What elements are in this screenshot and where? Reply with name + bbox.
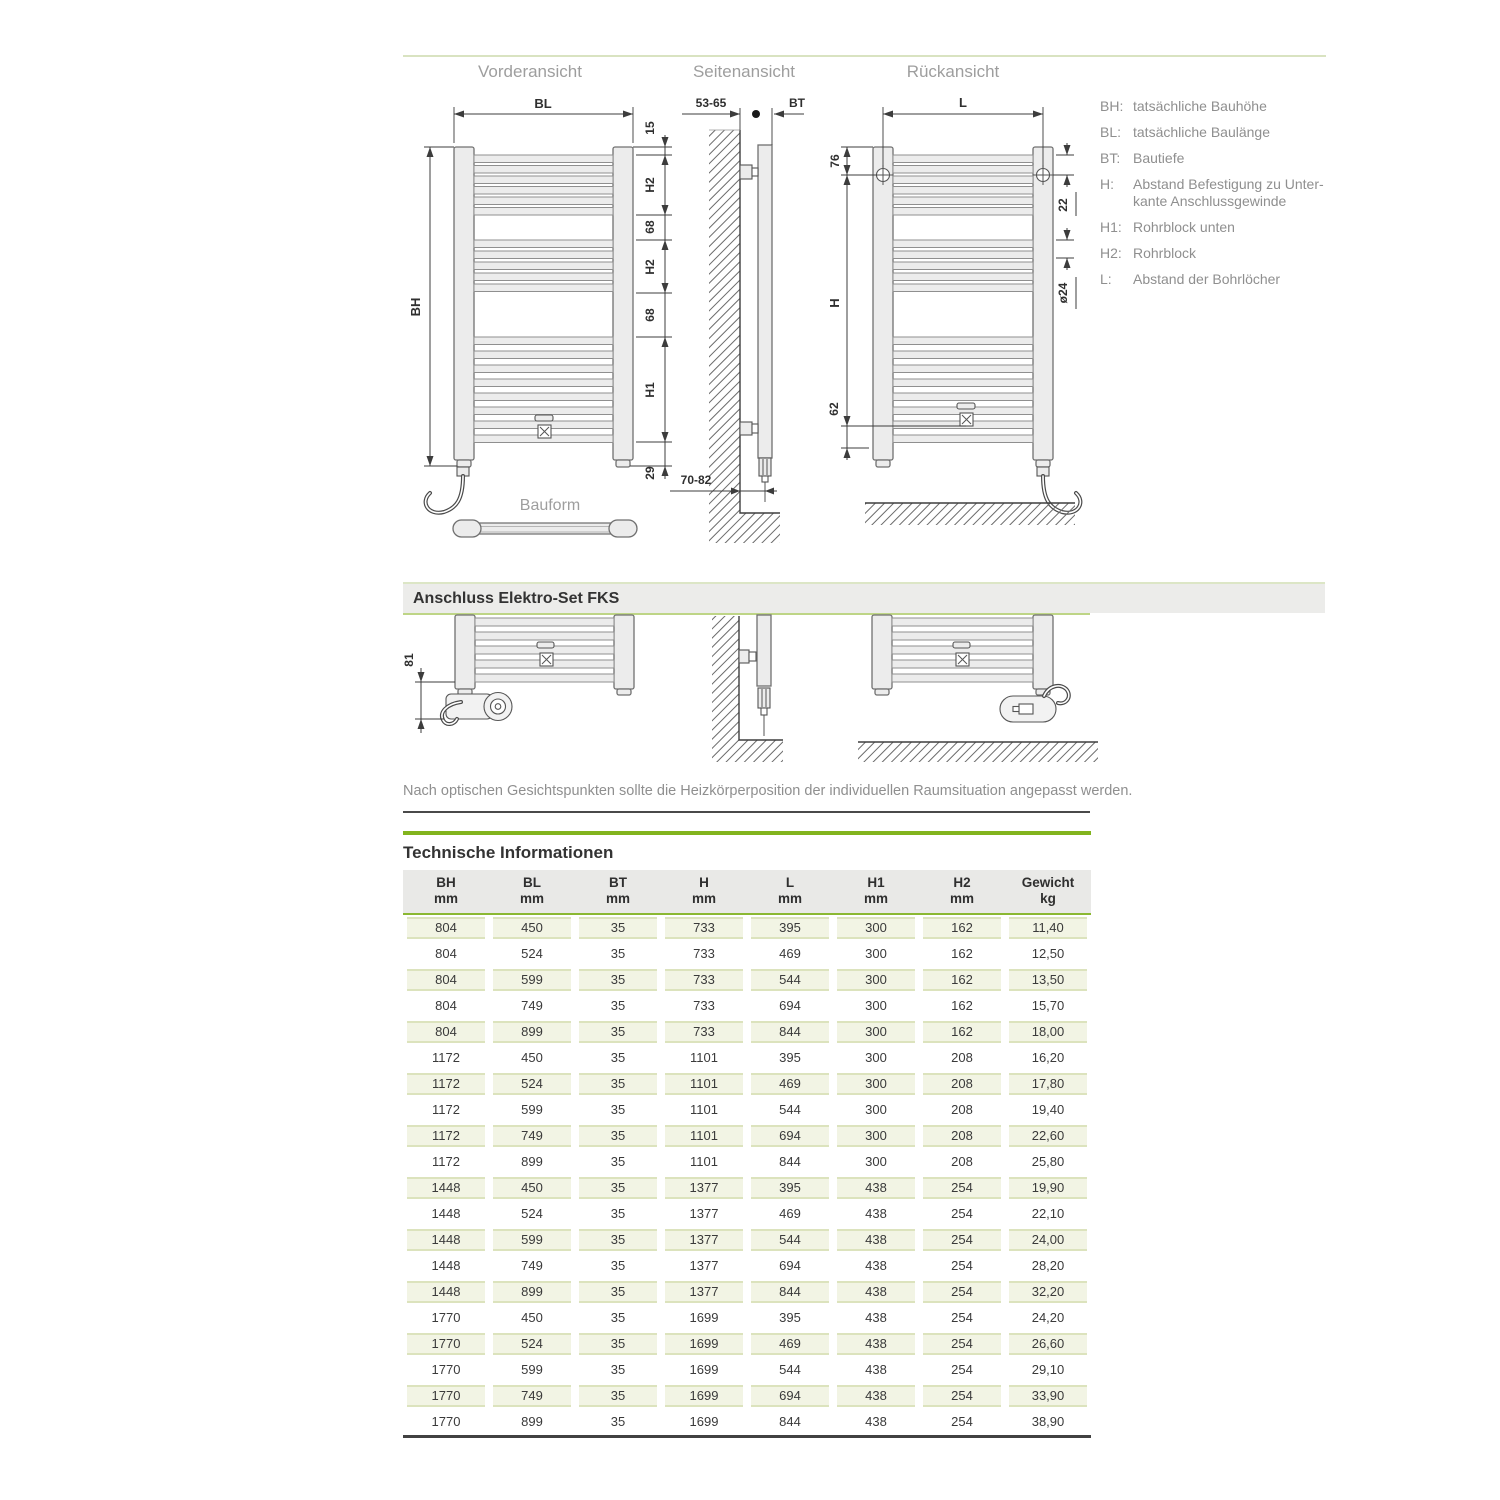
cell-bh: 1172 xyxy=(403,1123,489,1149)
column-label: BH xyxy=(403,875,489,891)
cell-gewicht: 15,70 xyxy=(1005,993,1091,1019)
cell-h1: 438 xyxy=(833,1253,919,1279)
cell-h2: 254 xyxy=(919,1409,1005,1437)
column-header: BH mm xyxy=(403,870,489,914)
cell-h2: 254 xyxy=(919,1201,1005,1227)
cell-h2: 162 xyxy=(919,993,1005,1019)
cell-bh: 1172 xyxy=(403,1071,489,1097)
cell-bl: 524 xyxy=(489,1071,575,1097)
cell-h: 733 xyxy=(661,1019,747,1045)
column-header: Gewicht kg xyxy=(1005,870,1091,914)
cell-l: 544 xyxy=(747,1227,833,1253)
cell-bt: 35 xyxy=(575,1123,661,1149)
cell-gewicht: 24,00 xyxy=(1005,1227,1091,1253)
cell-gewicht: 22,60 xyxy=(1005,1123,1091,1149)
cell-bh: 1448 xyxy=(403,1227,489,1253)
fks-electro-unit xyxy=(1000,686,1069,722)
cell-h: 733 xyxy=(661,993,747,1019)
cell-h1: 300 xyxy=(833,1123,919,1149)
cell-bh: 804 xyxy=(403,914,489,941)
cell-bh: 1448 xyxy=(403,1279,489,1305)
column-label: BL xyxy=(489,875,575,891)
cell-h2: 254 xyxy=(919,1383,1005,1409)
column-unit: mm xyxy=(833,891,919,907)
cell-bl: 524 xyxy=(489,1201,575,1227)
cell-gewicht: 19,40 xyxy=(1005,1097,1091,1123)
cell-l: 844 xyxy=(747,1019,833,1045)
cell-bh: 804 xyxy=(403,1019,489,1045)
table-row: 804 599 35 733 544 300 162 13,50 xyxy=(403,967,1091,993)
cell-h2: 208 xyxy=(919,1071,1005,1097)
table-row: 804 749 35 733 694 300 162 15,70 xyxy=(403,993,1091,1019)
cell-bh: 804 xyxy=(403,941,489,967)
dim-81-label: 81 xyxy=(403,653,416,667)
cell-h1: 300 xyxy=(833,1149,919,1175)
cell-h2: 162 xyxy=(919,914,1005,941)
legend-text-line1: Abstand der Bohrlöcher xyxy=(1133,271,1280,287)
cell-h: 1699 xyxy=(661,1357,747,1383)
cell-h1: 300 xyxy=(833,941,919,967)
legend-text: Rohrblock unten xyxy=(1133,219,1235,236)
cell-bh: 1770 xyxy=(403,1383,489,1409)
wall-bracket-top xyxy=(740,165,758,179)
cell-l: 844 xyxy=(747,1409,833,1437)
legend-key: H1: xyxy=(1100,219,1133,236)
legend-text: Rohrblock xyxy=(1133,245,1196,262)
table-row: 804 450 35 733 395 300 162 11,40 xyxy=(403,914,1091,941)
legend-item: L:Abstand der Bohrlöcher xyxy=(1100,271,1350,288)
cell-l: 395 xyxy=(747,914,833,941)
cell-h: 733 xyxy=(661,967,747,993)
dim-29-label: 29 xyxy=(643,466,657,480)
wall-bracket-bottom xyxy=(740,422,758,435)
cell-h1: 438 xyxy=(833,1279,919,1305)
cell-h1: 438 xyxy=(833,1331,919,1357)
cell-bl: 899 xyxy=(489,1279,575,1305)
rear-view-drawing: L 76 H 62 22 ø24 xyxy=(827,95,1080,525)
cell-gewicht: 28,20 xyxy=(1005,1253,1091,1279)
cell-bt: 35 xyxy=(575,1253,661,1279)
cell-h2: 162 xyxy=(919,941,1005,967)
elektro-section-title: Anschluss Elektro-Set FKS xyxy=(403,584,1325,608)
cell-h: 1699 xyxy=(661,1331,747,1357)
cell-gewicht: 26,60 xyxy=(1005,1331,1091,1357)
cell-gewicht: 32,20 xyxy=(1005,1279,1091,1305)
cell-h1: 300 xyxy=(833,967,919,993)
cell-bl: 450 xyxy=(489,1175,575,1201)
cell-gewicht: 25,80 xyxy=(1005,1149,1091,1175)
table-row: 1770 450 35 1699 395 438 254 24,20 xyxy=(403,1305,1091,1331)
legend-key: BT: xyxy=(1100,150,1133,167)
dim-68-label: 68 xyxy=(643,220,657,234)
technical-data-table: BH mm BL mm BT mm xyxy=(403,870,1091,1438)
legend-text-line1: tatsächliche Baulänge xyxy=(1133,124,1270,140)
cell-bt: 35 xyxy=(575,1071,661,1097)
floor-hatch xyxy=(858,742,1098,762)
cell-h: 1101 xyxy=(661,1097,747,1123)
dim-76-label: 76 xyxy=(828,154,842,168)
cell-h: 1377 xyxy=(661,1227,747,1253)
side-view-title: Seitenansicht xyxy=(693,62,795,81)
legend-item: H:Abstand Befestigung zu Unter-kante Ans… xyxy=(1100,176,1350,210)
table-header-row: BH mm BL mm BT mm xyxy=(403,870,1091,914)
dim-bt-label: BT xyxy=(789,96,806,110)
rear-rungs xyxy=(893,155,1033,443)
cell-bl: 899 xyxy=(489,1149,575,1175)
cell-gewicht: 29,10 xyxy=(1005,1357,1091,1383)
cell-bl: 599 xyxy=(489,967,575,993)
table-row: 804 524 35 733 469 300 162 12,50 xyxy=(403,941,1091,967)
cell-bt: 35 xyxy=(575,1097,661,1123)
front-view-drawing: BL BH 15 H2 68 H2 68 H1 29 Bauform xyxy=(408,96,672,537)
legend-text: Bautiefe xyxy=(1133,150,1184,167)
column-label: H1 xyxy=(833,875,919,891)
cell-bl: 599 xyxy=(489,1097,575,1123)
cell-bh: 1172 xyxy=(403,1045,489,1071)
cell-h: 1101 xyxy=(661,1045,747,1071)
vent-clip-icon xyxy=(537,642,554,666)
cell-h1: 300 xyxy=(833,1071,919,1097)
cell-bl: 899 xyxy=(489,1409,575,1437)
cell-bl: 599 xyxy=(489,1227,575,1253)
legend-item: BT:Bautiefe xyxy=(1100,150,1350,167)
column-label: H xyxy=(661,875,747,891)
elektro-section-bar: Anschluss Elektro-Set FKS xyxy=(403,584,1325,613)
legend-item: H2:Rohrblock xyxy=(1100,245,1350,262)
datasheet-page: Vorderansicht Seitenansicht Rückansicht xyxy=(0,0,1500,1500)
cell-bt: 35 xyxy=(575,941,661,967)
cell-h: 733 xyxy=(661,914,747,941)
cell-bh: 1172 xyxy=(403,1097,489,1123)
column-unit: mm xyxy=(747,891,833,907)
heating-element xyxy=(758,688,770,736)
dim-l-label: L xyxy=(959,95,967,110)
cell-bt: 35 xyxy=(575,1331,661,1357)
dim-h2-label: H2 xyxy=(643,177,657,193)
cell-h1: 438 xyxy=(833,1383,919,1409)
legend-text: tatsächliche Baulänge xyxy=(1133,124,1270,141)
cell-bh: 804 xyxy=(403,967,489,993)
cell-h: 1377 xyxy=(661,1253,747,1279)
dim-h1-label: H1 xyxy=(643,382,657,398)
section-accent-bar xyxy=(403,831,1091,835)
dim-dia24-label: ø24 xyxy=(1056,282,1070,303)
cell-bl: 749 xyxy=(489,1383,575,1409)
cell-h2: 254 xyxy=(919,1227,1005,1253)
cell-l: 694 xyxy=(747,1383,833,1409)
front-view-title: Vorderansicht xyxy=(478,62,582,81)
front-rungs xyxy=(474,155,613,443)
cell-h2: 208 xyxy=(919,1045,1005,1071)
legend-text-line1: tatsächliche Bauhöhe xyxy=(1133,98,1267,114)
cell-l: 395 xyxy=(747,1045,833,1071)
cell-h2: 254 xyxy=(919,1279,1005,1305)
column-unit: kg xyxy=(1005,891,1091,907)
position-note: Nach optischen Gesichtspunkten sollte di… xyxy=(403,783,1303,799)
cell-bt: 35 xyxy=(575,1279,661,1305)
cell-bh: 1770 xyxy=(403,1409,489,1437)
technical-informations-section: Technische Informationen BH mm BL mm xyxy=(403,831,1091,1438)
column-header: L mm xyxy=(747,870,833,914)
cell-bl: 524 xyxy=(489,941,575,967)
bauform-cross-section xyxy=(453,520,637,537)
cell-l: 544 xyxy=(747,1097,833,1123)
column-unit: mm xyxy=(661,891,747,907)
cell-h: 1377 xyxy=(661,1279,747,1305)
column-header: BT mm xyxy=(575,870,661,914)
wall-bracket xyxy=(739,650,756,663)
cell-bt: 35 xyxy=(575,1019,661,1045)
cell-h1: 438 xyxy=(833,1175,919,1201)
vent-clip-icon xyxy=(535,415,553,438)
legend-item: H1:Rohrblock unten xyxy=(1100,219,1350,236)
cell-h: 1377 xyxy=(661,1201,747,1227)
column-header: H1 mm xyxy=(833,870,919,914)
cell-bt: 35 xyxy=(575,914,661,941)
column-label: L xyxy=(747,875,833,891)
cell-bt: 35 xyxy=(575,1201,661,1227)
cell-bt: 35 xyxy=(575,993,661,1019)
table-row: 1770 749 35 1699 694 438 254 33,90 xyxy=(403,1383,1091,1409)
vent-clip-icon xyxy=(957,403,975,426)
legend-key: BH: xyxy=(1100,98,1133,115)
table-row: 804 899 35 733 844 300 162 18,00 xyxy=(403,1019,1091,1045)
dim-bl-label: BL xyxy=(534,96,551,111)
cell-bl: 749 xyxy=(489,1253,575,1279)
cell-bl: 899 xyxy=(489,1019,575,1045)
cell-h1: 300 xyxy=(833,1019,919,1045)
table-row: 1448 599 35 1377 544 438 254 24,00 xyxy=(403,1227,1091,1253)
cell-h: 1101 xyxy=(661,1071,747,1097)
cell-bl: 450 xyxy=(489,1045,575,1071)
column-header: H mm xyxy=(661,870,747,914)
dim-h2-label: H2 xyxy=(643,259,657,275)
legend-key: H: xyxy=(1100,176,1133,193)
reference-dot xyxy=(752,110,760,118)
table-row: 1172 749 35 1101 694 300 208 22,60 xyxy=(403,1123,1091,1149)
dim-70-82-label: 70-82 xyxy=(681,473,712,487)
fks-electro-unit xyxy=(442,693,512,725)
table-row: 1770 899 35 1699 844 438 254 38,90 xyxy=(403,1409,1091,1437)
vent-clip-icon xyxy=(953,642,970,666)
cell-gewicht: 13,50 xyxy=(1005,967,1091,993)
cell-bt: 35 xyxy=(575,1305,661,1331)
cell-gewicht: 12,50 xyxy=(1005,941,1091,967)
cell-l: 844 xyxy=(747,1279,833,1305)
cell-h: 1699 xyxy=(661,1409,747,1437)
cell-bh: 1448 xyxy=(403,1253,489,1279)
cell-l: 469 xyxy=(747,1071,833,1097)
cell-gewicht: 19,90 xyxy=(1005,1175,1091,1201)
column-unit: mm xyxy=(489,891,575,907)
column-unit: mm xyxy=(575,891,661,907)
cell-bt: 35 xyxy=(575,1227,661,1253)
cell-bl: 599 xyxy=(489,1357,575,1383)
table-row: 1770 524 35 1699 469 438 254 26,60 xyxy=(403,1331,1091,1357)
table-row: 1448 450 35 1377 395 438 254 19,90 xyxy=(403,1175,1091,1201)
cell-l: 395 xyxy=(747,1175,833,1201)
cell-h1: 300 xyxy=(833,914,919,941)
cell-gewicht: 16,20 xyxy=(1005,1045,1091,1071)
cell-l: 544 xyxy=(747,967,833,993)
cell-l: 469 xyxy=(747,1331,833,1357)
cell-h2: 254 xyxy=(919,1175,1005,1201)
legend-text-line2: kante Anschlussgewinde xyxy=(1133,193,1324,210)
cell-h1: 438 xyxy=(833,1409,919,1437)
heating-element xyxy=(759,458,771,502)
cell-h: 1101 xyxy=(661,1149,747,1175)
dim-h-label: H xyxy=(827,298,842,307)
table-row: 1172 450 35 1101 395 300 208 16,20 xyxy=(403,1045,1091,1071)
cell-bh: 1172 xyxy=(403,1149,489,1175)
cell-bt: 35 xyxy=(575,1045,661,1071)
cell-bt: 35 xyxy=(575,1383,661,1409)
dim-62-label: 62 xyxy=(827,402,841,416)
column-label: Gewicht xyxy=(1005,875,1091,891)
legend-text-line1: Bautiefe xyxy=(1133,150,1184,166)
cell-l: 469 xyxy=(747,1201,833,1227)
legend-item: BH:tatsächliche Bauhöhe xyxy=(1100,98,1350,115)
cell-h: 1377 xyxy=(661,1175,747,1201)
fks-front-drawing: 81 xyxy=(403,615,634,733)
table-row: 1448 749 35 1377 694 438 254 28,20 xyxy=(403,1253,1091,1279)
table-row: 1172 899 35 1101 844 300 208 25,80 xyxy=(403,1149,1091,1175)
dim-15-label: 15 xyxy=(643,121,657,135)
fks-side-drawing xyxy=(712,615,783,762)
cell-gewicht: 38,90 xyxy=(1005,1409,1091,1437)
cell-gewicht: 22,10 xyxy=(1005,1201,1091,1227)
cell-h2: 162 xyxy=(919,967,1005,993)
cell-gewicht: 17,80 xyxy=(1005,1071,1091,1097)
cell-bt: 35 xyxy=(575,1357,661,1383)
dim-68-label: 68 xyxy=(643,308,657,322)
legend-key: H2: xyxy=(1100,245,1133,262)
legend-text: Abstand der Bohrlöcher xyxy=(1133,271,1280,288)
cell-h2: 162 xyxy=(919,1019,1005,1045)
dim-bh-label: BH xyxy=(408,298,423,317)
cell-l: 694 xyxy=(747,1123,833,1149)
legend-text-line1: Rohrblock unten xyxy=(1133,219,1235,235)
cell-l: 844 xyxy=(747,1149,833,1175)
cell-h2: 254 xyxy=(919,1357,1005,1383)
column-unit: mm xyxy=(403,891,489,907)
cell-l: 694 xyxy=(747,1253,833,1279)
cell-gewicht: 11,40 xyxy=(1005,914,1091,941)
legend-text-line1: Rohrblock xyxy=(1133,245,1196,261)
cell-h2: 254 xyxy=(919,1331,1005,1357)
bauform-label: Bauform xyxy=(520,497,580,514)
cell-l: 469 xyxy=(747,941,833,967)
column-label: H2 xyxy=(919,875,1005,891)
cell-h1: 300 xyxy=(833,1045,919,1071)
cell-bt: 35 xyxy=(575,967,661,993)
cell-l: 694 xyxy=(747,993,833,1019)
cell-bt: 35 xyxy=(575,1175,661,1201)
cell-gewicht: 24,20 xyxy=(1005,1305,1091,1331)
legend-text: tatsächliche Bauhöhe xyxy=(1133,98,1267,115)
note-separator-line xyxy=(403,811,1090,813)
cell-h2: 254 xyxy=(919,1305,1005,1331)
column-label: BT xyxy=(575,875,661,891)
cell-h2: 208 xyxy=(919,1149,1005,1175)
cell-h: 1699 xyxy=(661,1305,747,1331)
cell-bh: 1770 xyxy=(403,1357,489,1383)
floor-hatch xyxy=(865,503,1075,525)
cell-bt: 35 xyxy=(575,1409,661,1437)
legend: BH:tatsächliche Bauhöhe BL:tatsächliche … xyxy=(1100,98,1350,297)
cell-bl: 749 xyxy=(489,1123,575,1149)
legend-item: BL:tatsächliche Baulänge xyxy=(1100,124,1350,141)
legend-text-line1: Abstand Befestigung zu Unter- xyxy=(1133,176,1324,192)
cell-l: 544 xyxy=(747,1357,833,1383)
cable-hook-icon xyxy=(426,467,469,513)
table-title: Technische Informationen xyxy=(403,843,1091,863)
cell-h: 1101 xyxy=(661,1123,747,1149)
cell-bh: 1448 xyxy=(403,1201,489,1227)
table-row: 1770 599 35 1699 544 438 254 29,10 xyxy=(403,1357,1091,1383)
rear-view-title: Rückansicht xyxy=(907,62,1000,81)
legend-text: Abstand Befestigung zu Unter-kante Ansch… xyxy=(1133,176,1324,210)
elektro-set-drawings: 81 xyxy=(403,612,1338,780)
legend-key: BL: xyxy=(1100,124,1133,141)
cell-h1: 438 xyxy=(833,1227,919,1253)
fks-rear-drawing xyxy=(858,615,1098,762)
table-row: 1448 524 35 1377 469 438 254 22,10 xyxy=(403,1201,1091,1227)
column-header: H2 mm xyxy=(919,870,1005,914)
legend-key: L: xyxy=(1100,271,1133,288)
cell-h2: 208 xyxy=(919,1097,1005,1123)
cell-bl: 450 xyxy=(489,1305,575,1331)
cell-h2: 254 xyxy=(919,1253,1005,1279)
cell-h: 733 xyxy=(661,941,747,967)
cell-bl: 450 xyxy=(489,914,575,941)
cell-bh: 804 xyxy=(403,993,489,1019)
side-view-drawing: 53-65 BT 70-82 xyxy=(670,96,806,543)
column-unit: mm xyxy=(919,891,1005,907)
table-row: 1172 599 35 1101 544 300 208 19,40 xyxy=(403,1097,1091,1123)
cell-h1: 300 xyxy=(833,1097,919,1123)
cell-bt: 35 xyxy=(575,1149,661,1175)
column-header: BL mm xyxy=(489,870,575,914)
dim-22-label: 22 xyxy=(1056,198,1070,212)
table-row: 1172 524 35 1101 469 300 208 17,80 xyxy=(403,1071,1091,1097)
cell-l: 395 xyxy=(747,1305,833,1331)
cell-h1: 438 xyxy=(833,1305,919,1331)
cell-bl: 749 xyxy=(489,993,575,1019)
cell-gewicht: 18,00 xyxy=(1005,1019,1091,1045)
table-row: 1448 899 35 1377 844 438 254 32,20 xyxy=(403,1279,1091,1305)
cell-h: 1699 xyxy=(661,1383,747,1409)
cell-h1: 438 xyxy=(833,1357,919,1383)
cell-bl: 524 xyxy=(489,1331,575,1357)
cell-gewicht: 33,90 xyxy=(1005,1383,1091,1409)
cell-bh: 1770 xyxy=(403,1331,489,1357)
cell-bh: 1770 xyxy=(403,1305,489,1331)
cell-bh: 1448 xyxy=(403,1175,489,1201)
cell-h1: 300 xyxy=(833,993,919,1019)
cell-h1: 438 xyxy=(833,1201,919,1227)
dim-53-65-label: 53-65 xyxy=(696,96,727,110)
cell-h2: 208 xyxy=(919,1123,1005,1149)
